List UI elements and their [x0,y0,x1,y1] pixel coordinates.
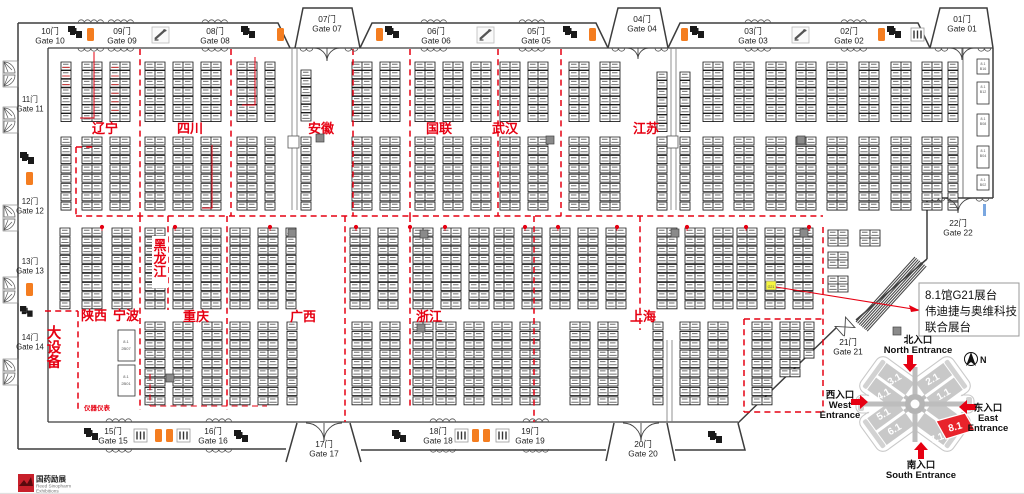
svg-text:N: N [980,355,987,365]
svg-text:Gate 07: Gate 07 [312,24,342,34]
svg-text:15门: 15门 [104,426,122,436]
svg-text:仪器仪表: 仪器仪表 [83,403,111,412]
svg-text:Gate 19: Gate 19 [515,436,545,446]
svg-text:江苏: 江苏 [633,121,659,136]
svg-text:Gate 14: Gate 14 [16,343,44,352]
svg-text:辽宁: 辽宁 [92,121,118,136]
svg-text:G21: G21 [768,285,775,289]
svg-text:22门: 22门 [949,218,967,228]
svg-text:B16: B16 [980,67,986,71]
svg-text:03门: 03门 [744,26,762,36]
svg-text:18门: 18门 [429,426,447,436]
svg-text:8.1: 8.1 [981,178,986,182]
svg-text:8.1: 8.1 [981,149,986,153]
svg-text:Gate 06: Gate 06 [421,36,451,46]
svg-text:2B01: 2B01 [121,381,131,386]
svg-text:Gate 20: Gate 20 [628,449,658,459]
svg-text:16门: 16门 [204,426,222,436]
svg-text:21门: 21门 [839,337,857,347]
svg-text:10门: 10门 [41,26,59,36]
svg-text:国联: 国联 [426,121,452,136]
svg-text:Gate 16: Gate 16 [198,436,228,446]
svg-text:8.1: 8.1 [123,374,129,379]
svg-text:黑龙江: 黑龙江 [153,238,166,279]
svg-text:South Entrance: South Entrance [886,470,956,481]
svg-text:2B07: 2B07 [121,346,131,351]
svg-text:8.1: 8.1 [981,117,986,121]
svg-text:武汉: 武汉 [492,121,519,136]
svg-text:四川: 四川 [177,121,203,136]
svg-text:宁波: 宁波 [113,308,140,323]
svg-text:Gate 05: Gate 05 [521,36,551,46]
svg-text:04门: 04门 [633,14,651,24]
svg-text:浙江: 浙江 [416,309,442,324]
svg-text:19门: 19门 [521,426,539,436]
svg-text:Gate 18: Gate 18 [423,436,453,446]
svg-text:Gate 13: Gate 13 [16,267,44,276]
svg-text:North Entrance: North Entrance [884,345,953,356]
svg-text:Exhibitions: Exhibitions [36,488,59,493]
svg-text:09门: 09门 [113,26,131,36]
svg-text:02门: 02门 [840,26,858,36]
svg-text:B08: B08 [980,122,986,126]
svg-text:20门: 20门 [634,439,652,449]
svg-text:07门: 07门 [318,14,336,24]
svg-text:B12: B12 [980,90,986,94]
svg-text:Gate 17: Gate 17 [309,449,339,459]
svg-text:Gate 10: Gate 10 [35,36,65,46]
svg-text:Gate 21: Gate 21 [833,347,863,357]
svg-text:国药励展: 国药励展 [36,474,66,484]
svg-text:大设备: 大设备 [46,324,62,371]
svg-text:广西: 广西 [290,309,316,324]
svg-text:11门: 11门 [22,94,38,104]
svg-text:8.1馆G21展台: 8.1馆G21展台 [925,288,997,302]
svg-text:Gate 03: Gate 03 [738,36,768,46]
svg-text:Gate 12: Gate 12 [16,207,44,216]
svg-text:Gate 04: Gate 04 [627,24,657,34]
svg-text:06门: 06门 [427,26,445,36]
svg-text:重庆: 重庆 [183,309,209,324]
svg-text:陕西: 陕西 [81,308,107,323]
svg-text:Gate 09: Gate 09 [107,36,137,46]
svg-text:12门: 12门 [22,196,39,206]
svg-text:伟迪捷与奥维科技: 伟迪捷与奥维科技 [925,304,1017,318]
svg-text:05门: 05门 [527,26,545,36]
svg-text:Entrance: Entrance [820,410,861,421]
svg-text:08门: 08门 [206,26,224,36]
svg-text:13门: 13门 [22,256,39,266]
svg-text:B04: B04 [980,154,986,158]
svg-text:01门: 01门 [953,14,971,24]
svg-text:Gate 01: Gate 01 [947,24,977,34]
svg-text:上海: 上海 [630,309,656,324]
svg-text:Entrance: Entrance [968,423,1009,434]
svg-text:Gate 08: Gate 08 [200,36,230,46]
svg-text:Gate 02: Gate 02 [834,36,864,46]
svg-text:8.1: 8.1 [981,85,986,89]
svg-text:B02: B02 [980,183,986,187]
svg-text:联合展台: 联合展台 [925,320,971,334]
svg-text:8.1: 8.1 [123,339,129,344]
svg-text:Gate 15: Gate 15 [98,436,128,446]
svg-text:Gate 22: Gate 22 [943,228,973,238]
svg-text:8.1: 8.1 [981,62,986,66]
svg-text:Gate 11: Gate 11 [16,105,43,114]
svg-text:14门: 14门 [22,332,39,342]
